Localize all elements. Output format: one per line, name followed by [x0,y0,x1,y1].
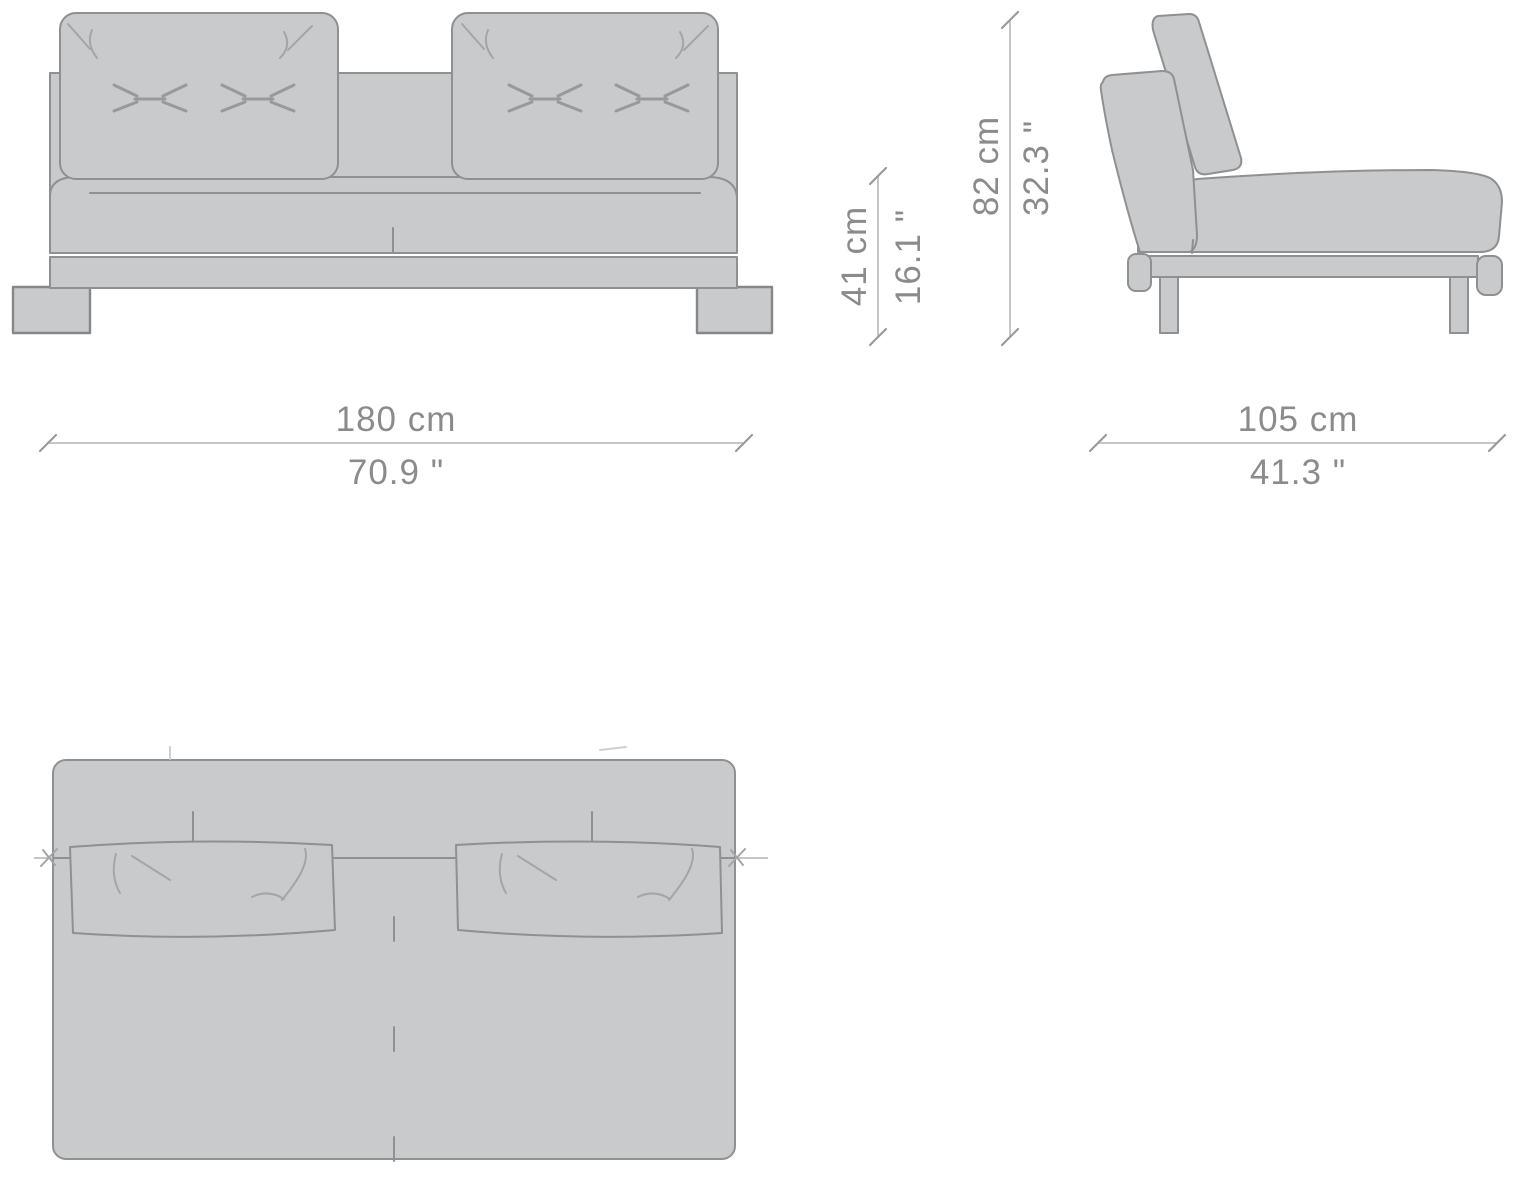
top-view [34,747,768,1171]
depth-cm-label: 105 cm [1238,400,1359,439]
top-right-cushion [456,841,722,936]
sofa-dimension-drawing: 180 cm 70.9 " 105 cm 41.3 " 41 cm 16.1 " [0,0,1514,1178]
depth-dimension: 105 cm 41.3 " [1090,400,1505,492]
overall-height-cm-label: 82 cm [967,116,1006,216]
width-cm-label: 180 cm [336,400,457,439]
seat-height-dimension: 41 cm 16.1 " [835,168,928,345]
front-right-cushion [452,13,718,179]
side-view [1101,14,1502,333]
seat-height-cm-label: 41 cm [835,206,874,306]
front-plinth [50,257,737,288]
side-left-glide [1128,254,1151,291]
overall-height-inch-label: 32.3 " [1017,120,1056,216]
front-view [13,13,772,333]
technical-drawing: 180 cm 70.9 " 105 cm 41.3 " 41 cm 16.1 " [0,0,1514,1178]
depth-inch-label: 41.3 " [1250,453,1346,492]
front-right-foot [697,287,772,333]
top-view-body [53,760,735,1159]
side-rail [1147,256,1478,277]
seat-height-inch-label: 16.1 " [889,209,928,305]
side-front-leg [1160,277,1178,333]
width-inch-label: 70.9 " [348,453,444,492]
top-edge-tick-right [600,747,626,750]
side-rear-leg [1450,277,1468,333]
front-left-cushion [60,13,338,179]
side-right-glide [1477,256,1502,295]
front-left-foot [13,287,90,333]
top-left-cushion [70,841,335,936]
width-dimension: 180 cm 70.9 " [40,400,752,492]
side-seat-seam [1192,240,1193,253]
overall-height-dimension: 82 cm 32.3 " [967,12,1056,345]
